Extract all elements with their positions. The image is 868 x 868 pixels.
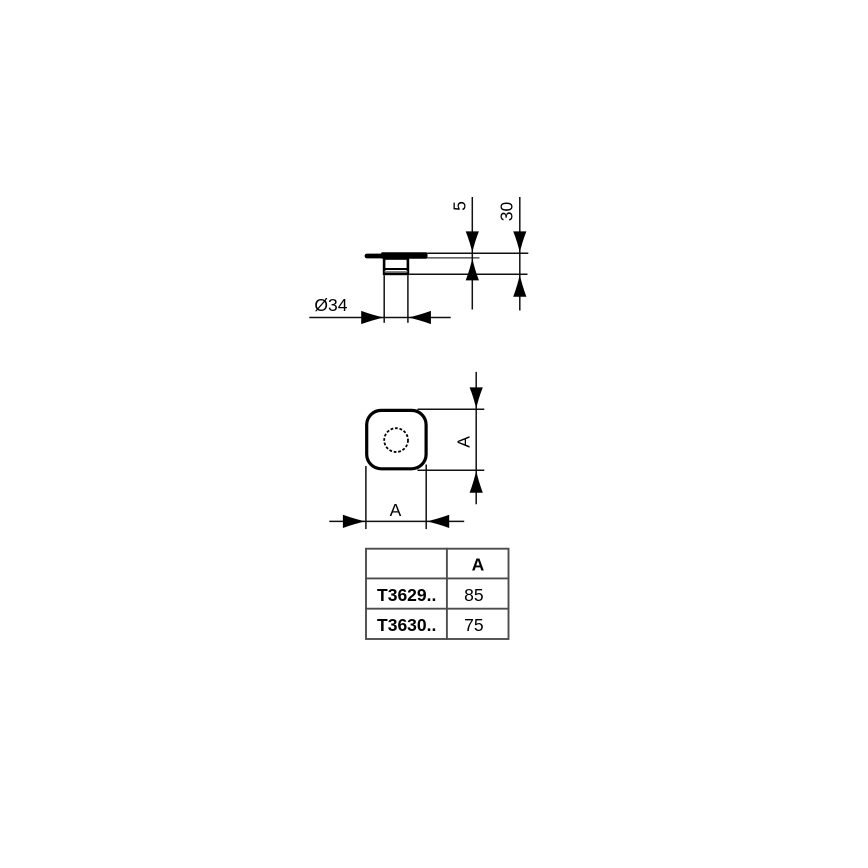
svg-text:85: 85 [464,585,483,605]
svg-text:T3630..: T3630.. [377,615,436,635]
svg-text:A: A [390,500,402,520]
svg-text:5: 5 [450,201,470,211]
svg-text:A: A [454,436,474,448]
svg-text:30: 30 [496,202,516,222]
svg-text:T3629..: T3629.. [377,585,436,605]
svg-text:A: A [472,554,485,574]
svg-text:Ø34: Ø34 [314,295,347,315]
svg-text:75: 75 [464,615,483,635]
